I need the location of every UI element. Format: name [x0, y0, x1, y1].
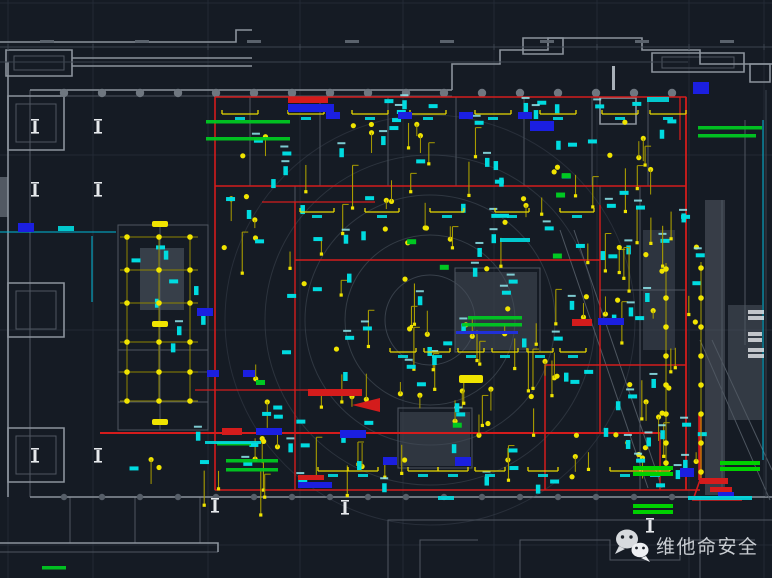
- column-marker: [31, 448, 39, 450]
- smoke-detector-symbol: [334, 346, 339, 351]
- device-tag-cyan: [312, 215, 322, 218]
- device-tag-cyan: [132, 258, 141, 262]
- device-node: [462, 402, 465, 405]
- device-node: [203, 504, 206, 507]
- column-symbol: [250, 89, 258, 97]
- device-tag-cyan: [177, 326, 182, 335]
- smoke-detector-symbol: [698, 382, 704, 388]
- device-tag-cyan: [674, 464, 682, 466]
- device-tag-cyan: [286, 437, 294, 439]
- dimension-text-blur: [247, 40, 261, 43]
- device-tag-green: [440, 265, 449, 270]
- label-text-white: [748, 332, 762, 336]
- column-marker: [341, 513, 349, 515]
- device-node: [351, 206, 354, 209]
- column-symbol: [326, 89, 334, 97]
- module-chip-blue: [18, 223, 34, 232]
- column-marker: [211, 498, 219, 500]
- device-tag-cyan: [459, 317, 467, 319]
- highlight-bar-red: [308, 389, 362, 396]
- smoke-detector-symbol: [663, 266, 669, 272]
- column-marker: [97, 121, 100, 132]
- device-node: [474, 155, 477, 158]
- device-node: [535, 343, 538, 346]
- device-tag-cyan: [473, 268, 478, 277]
- device-node: [475, 359, 478, 362]
- device-tag-cyan: [490, 228, 498, 230]
- device-tag-cyan: [477, 248, 482, 257]
- hatch-fill-region: [455, 272, 537, 350]
- device-tag-cyan: [418, 474, 428, 477]
- device-node: [507, 479, 510, 482]
- screenshot-root: 维他命安全: [0, 0, 772, 578]
- column-symbol: [516, 89, 524, 97]
- smoke-detector-symbol: [240, 153, 245, 158]
- device-tag-cyan: [692, 281, 701, 285]
- device-tag-cyan: [545, 226, 554, 230]
- column-marker: [97, 450, 100, 461]
- device-node: [320, 406, 323, 409]
- dimension-text-blur: [635, 40, 649, 43]
- label-text-white: [748, 310, 764, 314]
- column-marker: [211, 511, 219, 513]
- smoke-detector-symbol: [369, 122, 374, 127]
- device-tag-cyan: [679, 209, 687, 211]
- column-marker: [34, 121, 37, 132]
- cable-tray-bar-green: [633, 504, 673, 508]
- column-marker: [34, 184, 37, 195]
- device-tag-cyan: [380, 477, 388, 479]
- label-text-cyan: [58, 226, 74, 231]
- device-tag-cyan: [554, 337, 563, 341]
- dimension-text-blur: [540, 40, 554, 43]
- smoke-detector-symbol: [124, 300, 130, 306]
- device-tag-cyan: [337, 142, 345, 144]
- device-tag-cyan: [489, 208, 497, 210]
- device-tag-cyan: [339, 148, 344, 157]
- device-tag-cyan: [532, 104, 540, 106]
- annotation-underline-blue: [456, 331, 518, 334]
- device-tag-cyan: [364, 421, 373, 425]
- smoke-detector-symbol: [521, 196, 526, 201]
- device-tag-cyan: [282, 152, 291, 156]
- device-tag-cyan: [698, 432, 707, 436]
- device-tag-cyan: [568, 295, 576, 297]
- device-tag-cyan: [601, 251, 606, 260]
- device-node: [586, 261, 589, 264]
- device-tag-cyan: [345, 336, 354, 340]
- device-tag-cyan: [632, 102, 641, 106]
- device-tag-cyan: [296, 472, 304, 474]
- device-node: [340, 400, 343, 403]
- device-tag-cyan: [358, 474, 368, 477]
- device-node: [407, 146, 410, 149]
- device-node: [527, 389, 530, 392]
- device-tag-cyan: [536, 485, 541, 494]
- column-symbol: [403, 494, 409, 500]
- device-tag-cyan: [452, 444, 457, 453]
- device-tag-cyan: [443, 341, 452, 345]
- device-tag-cyan: [658, 424, 666, 426]
- device-tag-cyan: [417, 382, 426, 386]
- label-text-cyan: [438, 496, 454, 500]
- annotation-text-green: [698, 126, 762, 130]
- device-tag-cyan: [502, 291, 511, 295]
- device-tag-cyan: [235, 117, 245, 120]
- device-tag-cyan: [389, 126, 398, 130]
- device-tag-cyan: [572, 215, 582, 218]
- column-symbol: [136, 89, 144, 97]
- device-tag-cyan: [485, 158, 490, 167]
- cable-tray-bar-green: [633, 466, 673, 470]
- smoke-detector-symbol: [485, 421, 490, 426]
- column-symbol: [174, 89, 182, 97]
- module-chip-blue: [598, 318, 624, 325]
- device-tag-cyan: [576, 244, 585, 248]
- device-tag-cyan: [429, 104, 438, 108]
- column-marker: [214, 500, 217, 511]
- device-tag-cyan: [550, 480, 559, 484]
- column-marker: [34, 450, 37, 461]
- module-chip-blue: [207, 370, 219, 377]
- module-chip-blue: [459, 112, 473, 119]
- column-marker: [94, 182, 102, 184]
- smoke-detector-symbol: [698, 324, 704, 330]
- highlight-bar-red: [710, 487, 732, 492]
- device-tag-cyan: [365, 117, 375, 120]
- cable-tray-bar-green: [633, 472, 673, 476]
- device-tag-cyan: [247, 210, 252, 219]
- device-bar-yellow: [152, 321, 168, 327]
- device-node: [640, 417, 643, 420]
- highlight-bar-red: [572, 319, 592, 326]
- device-tag-cyan: [552, 331, 560, 333]
- device-tag-cyan: [201, 316, 206, 325]
- device-tag-cyan: [423, 117, 433, 120]
- device-node: [478, 362, 481, 365]
- device-tag-cyan: [694, 247, 702, 249]
- smoke-detector-symbol: [584, 294, 589, 299]
- device-node: [263, 496, 266, 499]
- device-node: [604, 269, 607, 272]
- device-tag-cyan: [241, 456, 249, 458]
- device-tag-cyan: [660, 430, 665, 439]
- device-tag-green: [556, 193, 565, 198]
- smoke-detector-symbol: [484, 266, 489, 271]
- device-tag-cyan: [524, 103, 529, 112]
- module-chip-blue: [326, 112, 340, 119]
- device-node: [288, 267, 291, 270]
- device-tag-cyan: [280, 146, 288, 148]
- device-tag-cyan: [676, 470, 681, 479]
- device-tag-cyan: [262, 412, 271, 416]
- column-symbol: [554, 89, 562, 97]
- device-tag-cyan: [296, 420, 305, 424]
- device-tag-green: [256, 380, 265, 385]
- device-bar-yellow: [459, 375, 483, 383]
- column-marker: [94, 448, 102, 450]
- device-tag-cyan: [384, 99, 393, 103]
- device-tag-cyan: [608, 254, 617, 258]
- device-tag-cyan: [379, 130, 387, 132]
- label-text-white: [748, 338, 762, 342]
- smoke-detector-symbol: [617, 245, 622, 250]
- device-tag-green: [407, 239, 416, 244]
- device-node: [340, 293, 343, 296]
- column-marker: [649, 520, 652, 531]
- device-tag-cyan: [471, 262, 479, 264]
- device-node: [669, 237, 672, 240]
- device-tag-cyan: [643, 287, 651, 289]
- smoke-detector-symbol: [663, 382, 669, 388]
- bubble-eye: [629, 535, 632, 538]
- device-tag-cyan: [509, 280, 518, 284]
- column-symbol: [555, 494, 561, 500]
- hatch-fill-region: [140, 248, 184, 310]
- device-node: [674, 366, 677, 369]
- device-tag-cyan: [543, 220, 551, 222]
- device-tag-cyan: [130, 466, 139, 470]
- device-tag-green: [453, 423, 462, 428]
- device-tag-cyan: [283, 166, 288, 175]
- device-tag-cyan: [485, 477, 490, 486]
- device-tag-cyan: [402, 100, 407, 109]
- module-chip-blue: [680, 468, 694, 477]
- device-tag-cyan: [570, 301, 575, 310]
- device-tag-cyan: [626, 388, 634, 390]
- column-symbol: [593, 494, 599, 500]
- device-node: [532, 434, 535, 437]
- smoke-detector-symbol: [615, 298, 620, 303]
- device-node: [367, 345, 370, 348]
- column-marker: [31, 182, 39, 184]
- smoke-detector-symbol: [693, 319, 698, 324]
- device-bar-yellow: [152, 221, 168, 227]
- device-tag-cyan: [568, 143, 577, 147]
- bubble-eye: [635, 547, 638, 550]
- device-tag-cyan: [432, 355, 442, 358]
- device-tag-cyan: [171, 343, 176, 352]
- device-node: [499, 265, 502, 268]
- column-symbol: [440, 89, 448, 97]
- smoke-detector-symbol: [627, 382, 632, 387]
- smoke-detector-symbol: [613, 432, 618, 437]
- smoke-detector-symbol: [187, 339, 193, 345]
- column-marker: [97, 184, 100, 195]
- column-symbol: [212, 89, 220, 97]
- device-tag-cyan: [300, 205, 305, 214]
- smoke-detector-symbol: [663, 440, 669, 446]
- device-tag-cyan: [164, 251, 169, 260]
- smoke-detector-symbol: [569, 474, 574, 479]
- device-tag-cyan: [555, 104, 560, 113]
- device-tag-cyan: [455, 403, 460, 412]
- column-symbol: [364, 89, 372, 97]
- device-tag-cyan: [485, 474, 495, 477]
- device-tag-cyan: [644, 431, 652, 433]
- module-chip-blue: [298, 482, 332, 488]
- smoke-detector-symbol: [622, 120, 627, 125]
- annotation-text-green: [206, 137, 290, 141]
- column-symbol: [175, 494, 181, 500]
- device-bar-yellow: [152, 419, 168, 425]
- device-tag-cyan: [400, 94, 408, 96]
- device-tag-cyan: [357, 461, 362, 470]
- device-tag-cyan: [491, 214, 500, 218]
- column-marker: [646, 531, 654, 533]
- column-symbol: [137, 494, 143, 500]
- device-tag-cyan: [634, 453, 642, 455]
- smoke-detector-symbol: [698, 295, 704, 301]
- smoke-detector-symbol: [552, 169, 557, 174]
- device-tag-cyan: [620, 474, 630, 477]
- device-tag-cyan: [604, 428, 609, 437]
- module-chip-blue: [383, 457, 397, 465]
- device-tag-cyan: [448, 474, 458, 477]
- device-node: [635, 241, 638, 244]
- device-tag-cyan: [588, 139, 597, 143]
- smoke-detector-symbol: [124, 369, 130, 375]
- device-tag-cyan: [287, 294, 296, 298]
- device-tag-cyan: [538, 474, 548, 477]
- device-tag-cyan: [499, 178, 504, 187]
- device-tag-cyan: [282, 350, 291, 354]
- device-node: [574, 194, 577, 197]
- column-symbol: [631, 494, 637, 500]
- device-tag-cyan: [509, 466, 518, 470]
- device-tag-cyan: [607, 204, 616, 208]
- device-tag-cyan: [500, 285, 508, 287]
- device-tag-cyan: [347, 274, 352, 283]
- device-tag-cyan: [288, 443, 293, 452]
- smoke-detector-symbol: [663, 353, 669, 359]
- smoke-detector-symbol: [607, 153, 612, 158]
- device-node: [636, 187, 639, 190]
- device-tag-cyan: [313, 287, 322, 291]
- device-tag-cyan: [200, 460, 209, 464]
- device-tag-cyan: [377, 215, 387, 218]
- device-tag-cyan: [473, 115, 481, 117]
- column-symbol: [365, 494, 371, 500]
- chat-bubble-small: [632, 543, 649, 557]
- label-text-cyan: [647, 97, 669, 102]
- wall-end-tick: [612, 66, 615, 90]
- column-symbol: [630, 89, 638, 97]
- device-node: [451, 246, 454, 249]
- column-symbol: [61, 494, 67, 500]
- watermark-text: 维他命安全: [656, 536, 759, 558]
- device-tag-cyan: [363, 326, 372, 330]
- device-tag-cyan: [636, 206, 645, 210]
- device-tag-cyan: [508, 448, 517, 452]
- device-node: [217, 487, 220, 490]
- column-marker: [341, 500, 349, 502]
- column-symbol: [592, 89, 600, 97]
- device-tag-cyan: [418, 296, 423, 305]
- device-tag-cyan: [365, 196, 374, 200]
- device-tag-cyan: [649, 373, 657, 375]
- dimension-text-blur: [440, 40, 454, 43]
- device-node: [432, 368, 435, 371]
- device-tag-green: [562, 173, 571, 178]
- device-tag-cyan: [593, 98, 601, 100]
- device-tag-cyan: [194, 426, 202, 428]
- device-tag-cyan: [645, 293, 650, 302]
- column-symbol: [60, 89, 68, 97]
- device-tag-cyan: [407, 365, 416, 369]
- device-node: [540, 213, 543, 216]
- device-tag-cyan: [663, 117, 673, 120]
- smoke-detector-symbol: [663, 411, 669, 417]
- bubble-eye: [642, 547, 645, 550]
- smoke-detector-symbol: [698, 440, 704, 446]
- device-tag-cyan: [656, 483, 665, 487]
- device-tag-cyan: [398, 355, 408, 358]
- device-tag-cyan: [535, 355, 545, 358]
- device-tag-cyan: [156, 245, 165, 249]
- highlight-bar-red: [700, 478, 728, 484]
- smoke-detector-symbol: [698, 353, 704, 359]
- column-symbol: [668, 89, 676, 97]
- smoke-detector-symbol: [555, 165, 560, 170]
- module-chip-blue: [693, 82, 709, 94]
- device-node: [320, 252, 323, 255]
- device-tag-cyan: [271, 179, 276, 188]
- device-tag-cyan: [492, 234, 497, 243]
- device-tag-cyan: [636, 459, 645, 463]
- device-tag-cyan: [615, 117, 625, 120]
- device-tag-cyan: [584, 370, 593, 374]
- device-node: [346, 494, 349, 497]
- annotation-text-green: [206, 120, 290, 124]
- smoke-detector-symbol: [574, 433, 579, 438]
- device-tag-cyan: [620, 191, 629, 195]
- device-tag-cyan: [442, 215, 452, 218]
- smoke-detector-symbol: [187, 234, 193, 240]
- smoke-detector-symbol: [156, 398, 162, 404]
- device-tag-cyan: [196, 432, 201, 441]
- smoke-detector-symbol: [698, 265, 704, 271]
- device-tag-cyan: [534, 110, 539, 119]
- module-chip-blue: [288, 104, 334, 112]
- device-tag-cyan: [624, 434, 632, 436]
- annotation-text-green: [226, 468, 278, 472]
- module-chip-blue: [398, 112, 412, 119]
- device-tag-cyan: [395, 104, 403, 106]
- device-node: [513, 367, 516, 370]
- smoke-detector-symbol: [124, 267, 130, 273]
- device-tag-cyan: [382, 483, 387, 492]
- device-tag-cyan: [169, 279, 178, 283]
- device-tag-cyan: [342, 229, 350, 231]
- device-node: [643, 163, 646, 166]
- device-node: [410, 325, 413, 328]
- bubble-eye: [621, 535, 624, 538]
- device-node: [400, 472, 403, 475]
- column-marker: [94, 461, 102, 463]
- column-symbol: [99, 494, 105, 500]
- device-tag-cyan: [682, 423, 691, 427]
- device-tag-cyan: [634, 200, 642, 202]
- device-node: [687, 313, 690, 316]
- smoke-detector-symbol: [351, 123, 356, 128]
- smoke-detector-symbol: [643, 252, 648, 257]
- device-tag-cyan: [626, 440, 631, 449]
- label-text-white: [748, 348, 764, 352]
- column-marker: [31, 119, 39, 121]
- device-tag-cyan: [507, 215, 517, 218]
- column-symbol: [478, 89, 486, 97]
